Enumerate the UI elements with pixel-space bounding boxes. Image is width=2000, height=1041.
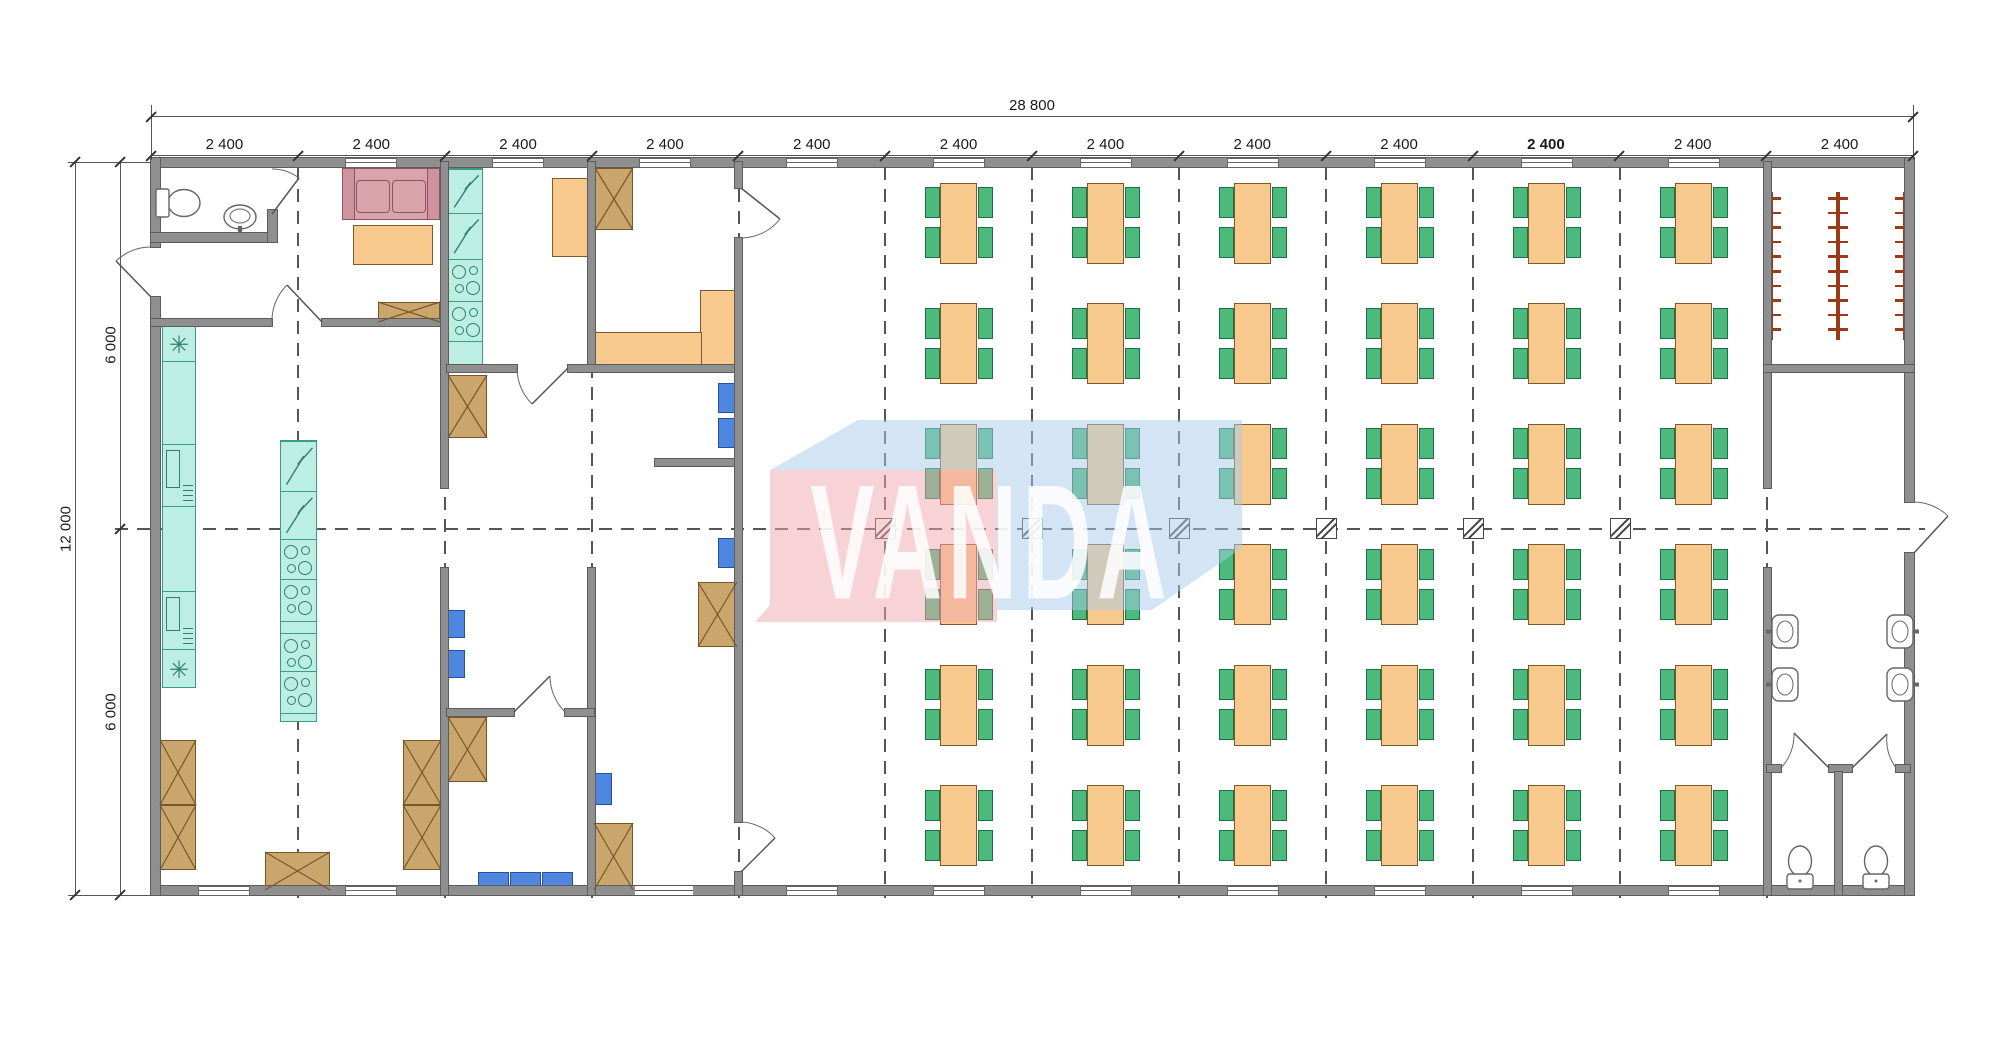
- dimension-label-bay: 2 400: [1527, 136, 1565, 153]
- dimension-label-total-width: 28 800: [1009, 97, 1055, 114]
- dimension-label-bay: 2 400: [1087, 136, 1125, 153]
- floor-plan-canvas: ✳✳ VANDA 28 8002 4002 4002 4002 4002 400…: [0, 0, 2000, 1041]
- dimension-label-bay: 2 400: [940, 136, 978, 153]
- extension-line: [68, 162, 151, 163]
- dimension-label-bay: 2 400: [646, 136, 684, 153]
- dimension-label-total-height: 12 000: [58, 506, 75, 552]
- dimension-line-total-height: [75, 162, 76, 895]
- dimension-layer: 28 8002 4002 4002 4002 4002 4002 4002 40…: [0, 0, 2000, 1041]
- dimension-line-total-width: [151, 116, 1913, 117]
- dimension-label-bay: 2 400: [206, 136, 244, 153]
- dimension-label-bay: 2 400: [1380, 136, 1418, 153]
- dimension-label-bay: 2 400: [499, 136, 537, 153]
- dimension-label-half-height: 6 000: [103, 326, 120, 364]
- dimension-label-bay: 2 400: [1233, 136, 1271, 153]
- dimension-label-bay: 2 400: [352, 136, 390, 153]
- dimension-label-half-height: 6 000: [103, 693, 120, 731]
- dimension-label-bay: 2 400: [793, 136, 831, 153]
- dimension-label-bay: 2 400: [1821, 136, 1859, 153]
- dimension-label-bay: 2 400: [1674, 136, 1712, 153]
- extension-line: [68, 895, 151, 896]
